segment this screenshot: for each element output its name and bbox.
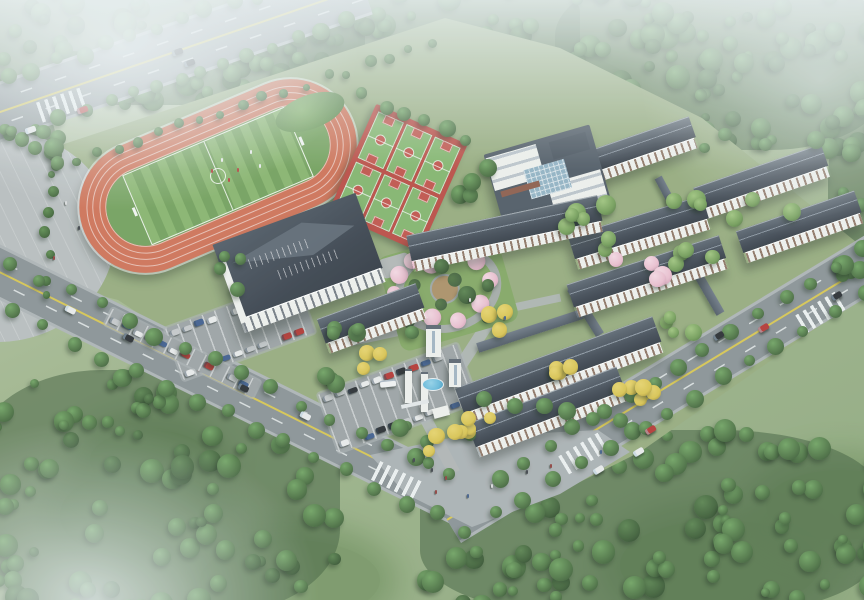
aerial-campus-rendering: [0, 0, 864, 600]
haze-veil: [0, 0, 864, 600]
